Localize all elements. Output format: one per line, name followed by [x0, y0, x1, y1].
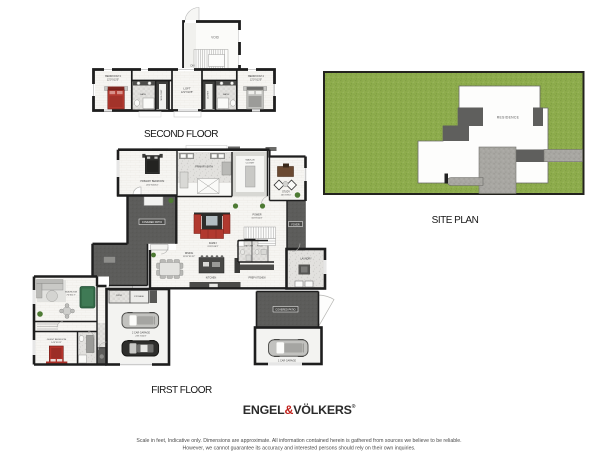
svg-text:Scale in feet, Indicative only: Scale in feet, Indicative only. Dimensio… — [136, 438, 461, 444]
svg-text:PRIMARY BATH: PRIMARY BATH — [195, 166, 213, 169]
svg-text:ENGEL&VÖLKERS®: ENGEL&VÖLKERS® — [243, 402, 356, 417]
svg-text:STUDY: STUDY — [282, 192, 290, 194]
svg-text:SITE PLAN: SITE PLAN — [432, 215, 479, 226]
svg-text:1 CAR GARAGE: 1 CAR GARAGE — [278, 360, 296, 363]
svg-text:CLOSET: CLOSET — [246, 162, 255, 164]
svg-text:2 CAR GARAGE: 2 CAR GARAGE — [132, 332, 150, 335]
svg-text:BATH: BATH — [140, 93, 146, 96]
svg-text:LOFT: LOFT — [183, 87, 190, 91]
svg-text:PRIMARY BEDROOM: PRIMARY BEDROOM — [140, 180, 164, 183]
svg-text:14'3"X13'2": 14'3"X13'2" — [51, 342, 62, 344]
svg-text:MUDROOM: MUDROOM — [65, 292, 77, 294]
svg-text:STORAGE: STORAGE — [134, 295, 144, 298]
svg-text:PWDR: PWDR — [257, 246, 264, 248]
svg-text:FAMILY: FAMILY — [209, 242, 218, 245]
svg-text:COVERED PATIO: COVERED PATIO — [142, 221, 162, 224]
svg-text:12'2"X10'5": 12'2"X10'5" — [181, 91, 193, 94]
svg-text:COVERED PATIO: COVERED PATIO — [275, 309, 295, 312]
svg-text:GUEST BEDROOM: GUEST BEDROOM — [47, 339, 67, 341]
svg-text:19'11"X13'2": 19'11"X13'2" — [183, 256, 195, 258]
svg-text:12'0"X13'0": 12'0"X13'0" — [107, 78, 119, 81]
svg-text:DN: DN — [191, 64, 195, 68]
svg-text:PWDR: PWDR — [116, 295, 123, 297]
svg-text:RESIDENCE: RESIDENCE — [497, 116, 520, 120]
svg-text:16'1"X9'10": 16'1"X9'10" — [281, 194, 292, 196]
svg-text:DINING: DINING — [185, 252, 194, 255]
svg-text:22'8"X18'2": 22'8"X18'2" — [207, 246, 218, 248]
svg-text:SECOND FLOOR: SECOND FLOOR — [144, 129, 218, 140]
svg-text:KITCHEN: KITCHEN — [206, 277, 217, 280]
svg-text:STORE: STORE — [246, 245, 254, 247]
svg-text:20'2"X16'10": 20'2"X16'10" — [146, 185, 159, 187]
svg-text:12'0"X13'0": 12'0"X13'0" — [250, 78, 262, 81]
svg-text:FIRST FLOOR: FIRST FLOOR — [151, 385, 212, 396]
svg-text:FOYER: FOYER — [291, 223, 300, 226]
svg-text:VOID: VOID — [211, 36, 219, 40]
svg-text:23'1"X20'2": 23'1"X20'2" — [135, 336, 146, 338]
svg-text:CLOSET: CLOSET — [208, 90, 210, 99]
svg-text:7'0"X11'7": 7'0"X11'7" — [66, 294, 76, 296]
svg-text:W.CLOSET: W.CLOSET — [161, 89, 163, 100]
svg-text:BEDROOM 3: BEDROOM 3 — [105, 74, 121, 78]
svg-text:PREP KITCHEN: PREP KITCHEN — [249, 278, 266, 280]
svg-text:WALK-IN: WALK-IN — [245, 159, 254, 162]
svg-text:LAUNDRY: LAUNDRY — [300, 258, 312, 261]
svg-text:BATH: BATH — [223, 93, 229, 96]
svg-text:However, we cannot guarantee i: However, we cannot guarantee its accurac… — [183, 446, 416, 452]
svg-text:POWER: POWER — [252, 214, 261, 217]
svg-text:16'3"X10'2": 16'3"X10'2" — [251, 218, 262, 220]
svg-text:BEDROOM 4: BEDROOM 4 — [248, 74, 264, 78]
